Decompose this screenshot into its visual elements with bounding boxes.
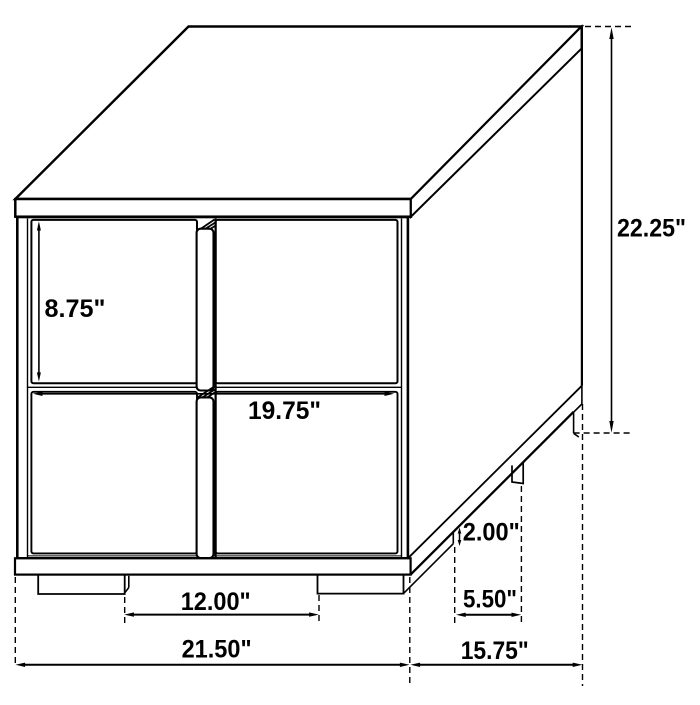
svg-text:12.00": 12.00" (181, 588, 251, 616)
svg-text:15.75": 15.75" (461, 637, 529, 665)
svg-text:22.25": 22.25" (617, 215, 686, 243)
svg-text:2.00": 2.00" (463, 519, 520, 547)
svg-text:19.75": 19.75" (248, 397, 321, 425)
svg-text:21.50": 21.50" (182, 636, 252, 664)
svg-text:5.50": 5.50" (463, 586, 517, 614)
svg-text:8.75": 8.75" (45, 295, 106, 323)
